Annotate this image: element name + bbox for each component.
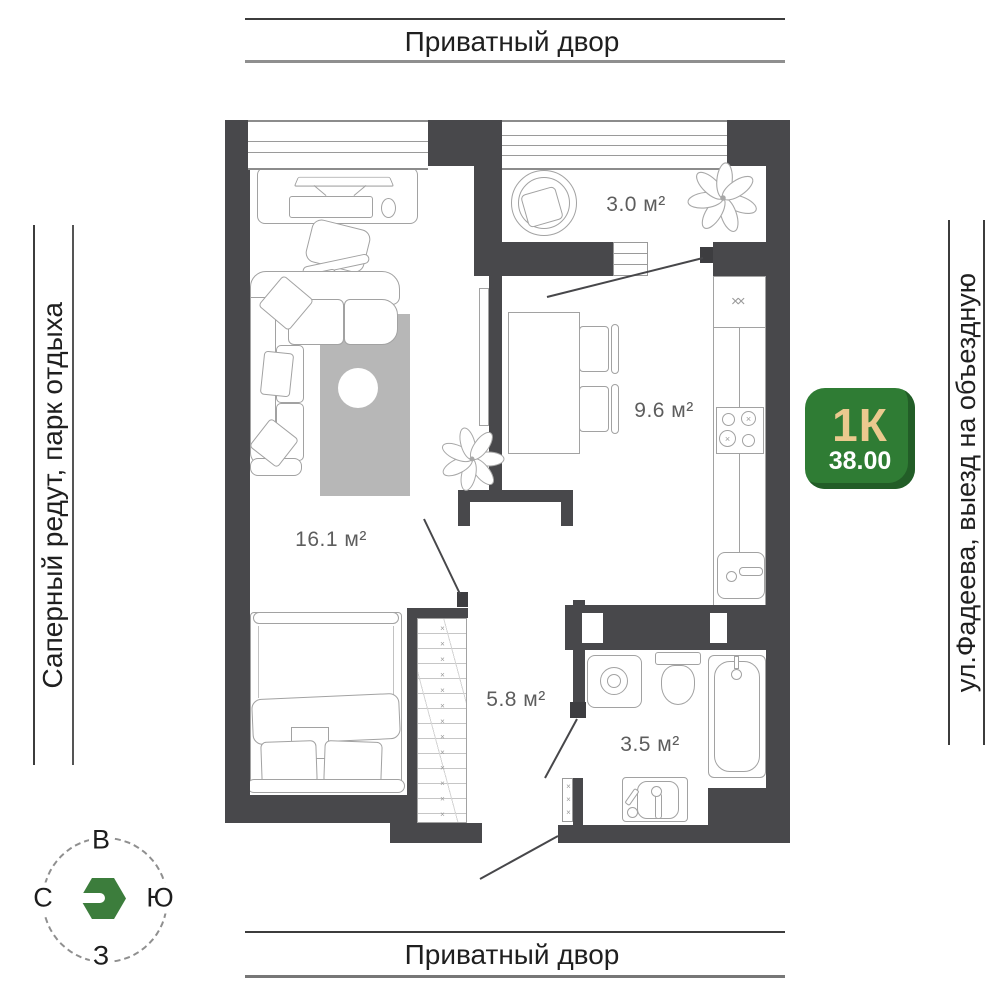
bathtub-faucet-stem [734, 656, 739, 669]
wall-t-leg-left [458, 502, 470, 526]
wall-balcony-bottom-left [474, 242, 613, 276]
compass-letter-left: С [30, 883, 56, 914]
dining-chair-seat [579, 326, 609, 372]
badge-room-count: 1К [832, 402, 888, 448]
stove-burner [742, 434, 755, 447]
dining-chair-back [611, 324, 619, 374]
dining-chair-seat [579, 386, 609, 432]
top-street-label: Приватный двор [405, 26, 620, 58]
desk-mouse [381, 198, 396, 218]
window-glazing-line [502, 155, 727, 156]
compass-letter-bottom: З [90, 941, 112, 972]
plant-balcony [687, 162, 759, 234]
left-street-label-wrap: Саперный редут, парк отдыха [36, 225, 70, 765]
wall-divider-living-kitchen [489, 276, 502, 492]
wall-wardrobe-top [407, 608, 468, 618]
floor-plan: ××× ××××××××××××× ×× × × [0, 0, 1000, 1000]
coffee-table [338, 368, 378, 408]
bed-footboard [247, 779, 405, 793]
balcony-door-hinge [700, 247, 713, 263]
bed-headboard [253, 612, 399, 624]
shaft-x-marks: ××× [564, 782, 573, 821]
washing-machine-drum-inner [607, 674, 621, 688]
bathroom-door-hinge [570, 702, 586, 718]
desk-monitor [294, 177, 394, 187]
dining-chair-back [611, 384, 619, 434]
room-area-label-hall: 5.8 м² [486, 688, 545, 712]
living-window [248, 120, 428, 170]
toilet-bowl [661, 665, 695, 705]
toilet-tank [655, 652, 701, 665]
compass-letter-right: Ю [143, 883, 176, 914]
compass-logo-notch [76, 893, 105, 903]
badge-area-value: 38.00 [829, 448, 892, 476]
stove-burner-x: × [719, 430, 736, 447]
wall-bottom-right-block [708, 788, 790, 843]
desk-keyboard [289, 196, 373, 218]
wall-pier-top [426, 120, 502, 166]
wall-right [766, 166, 790, 800]
room-area-label-living: 16.1 м² [295, 528, 367, 552]
vent-x-symbol: ×× [731, 293, 743, 310]
wall-bathroom-left-lower [573, 778, 583, 825]
entrance-door-swing-line [480, 836, 558, 879]
wall-wardrobe-left [407, 618, 417, 795]
stove-burner-x: × [741, 411, 756, 426]
tv-panel [479, 288, 489, 426]
bathroom-accessory-dot [627, 807, 638, 818]
wall-t-leg-right [561, 502, 573, 526]
window-glazing-line [248, 141, 428, 142]
right-street-label: ул.Фадеева, выезд на объездную [951, 273, 982, 692]
compass-letter-top: В [89, 825, 113, 856]
wall-hall-bottom [390, 823, 482, 843]
wall-t-horizontal [458, 490, 573, 502]
right-street-label-wrap: ул.Фадеева, выезд на объездную [950, 220, 983, 745]
balcony-window [502, 120, 727, 170]
vent-slot-left [582, 613, 603, 643]
wall-top-right-corner [727, 120, 790, 166]
bottom-street-label: Приватный двор [405, 939, 620, 971]
apartment-badge: 1К 38.00 [805, 388, 915, 489]
balcony-door-panel [613, 242, 648, 276]
wall-bathroom-bottom [558, 825, 718, 843]
room-area-label-bathroom: 3.5 м² [620, 733, 679, 757]
stove-burner [722, 413, 735, 426]
wall-bedroom-bottom [225, 795, 417, 823]
room-door-swing-line [424, 519, 460, 594]
wall-left [225, 120, 250, 822]
sofa-seat-cushion [344, 299, 398, 345]
sofa-pillow [260, 351, 294, 398]
bed-rail-line [393, 626, 394, 698]
room-door-hinge [457, 592, 468, 607]
bathtub-faucet [731, 669, 742, 680]
room-area-label-kitchen: 9.6 м² [634, 399, 693, 423]
bathroom-door-swing-line [545, 719, 577, 778]
dining-table [508, 312, 580, 454]
kitchen-sink-drain [726, 571, 737, 582]
room-area-label-balcony: 3.0 м² [606, 193, 665, 217]
window-glazing-line [248, 152, 428, 153]
left-street-label: Саперный редут, парк отдыха [37, 302, 69, 688]
bed-rail-line [258, 626, 259, 698]
bathroom-sink-knob [651, 786, 662, 797]
window-glazing-line [502, 135, 727, 136]
kitchen-sink-faucet [739, 567, 763, 576]
burner-x-mark: × [725, 434, 730, 444]
vent-slot-right [710, 613, 727, 643]
wardrobe-x-marks: ××××××××××××× [438, 624, 447, 826]
burner-x-mark: × [746, 414, 751, 424]
window-glazing-line [502, 145, 727, 146]
